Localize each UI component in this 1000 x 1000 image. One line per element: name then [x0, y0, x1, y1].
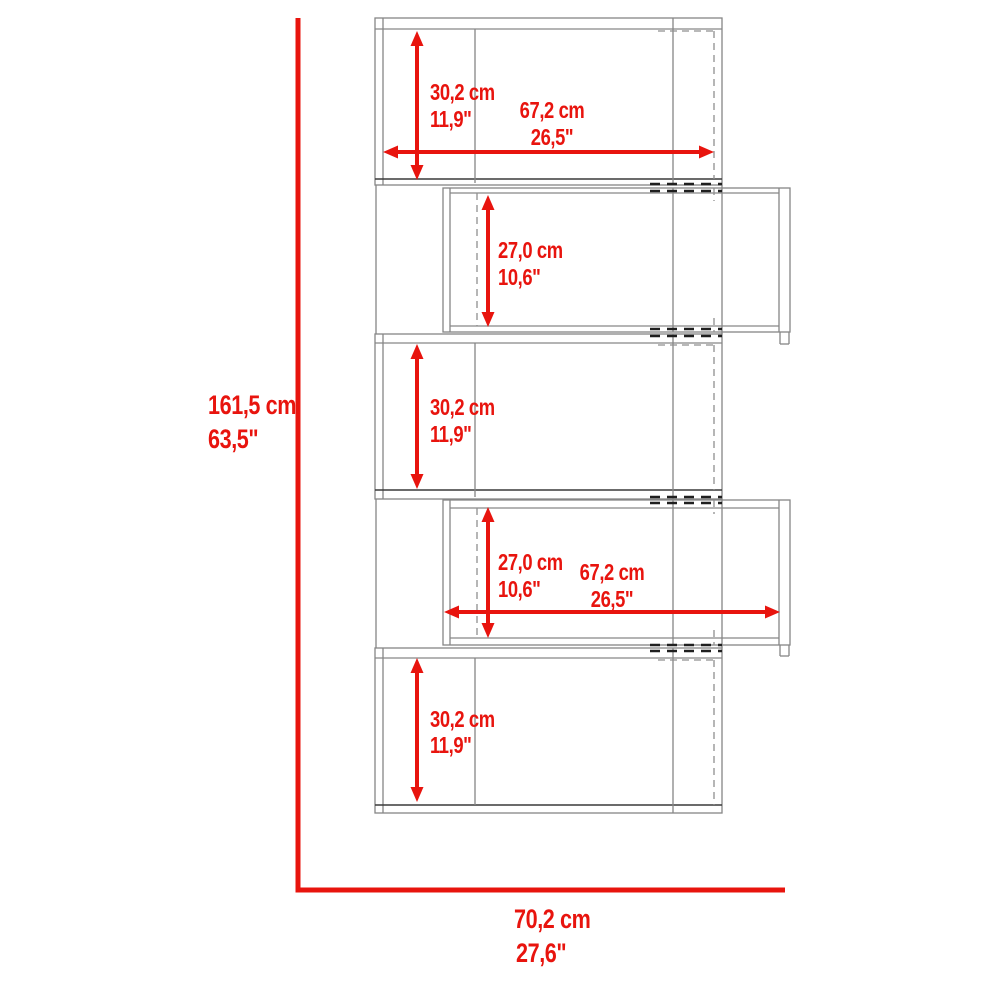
compartment-1-height-arrow [411, 31, 424, 180]
overall-width-in: 27,6" [516, 939, 566, 969]
compartment-4-height-arrow [482, 507, 495, 638]
compartment-2-height-label-inches: 10,6" [498, 265, 541, 290]
compartment-3-outline [375, 334, 722, 499]
compartment-4-width-in: 26,5" [591, 587, 634, 612]
shelf-boundary-hidden-edges [650, 184, 722, 651]
compartment-5-outline [375, 648, 722, 813]
arrow-head-left [444, 606, 459, 619]
compartment-3-height-in: 11,9" [430, 422, 471, 447]
compartment-3-height-cm: 30,2 cm [430, 395, 495, 420]
compartment-1-width-label: 67,2 cm [520, 98, 585, 123]
compartment-3-height-arrow [411, 344, 424, 489]
arrow-head-up [411, 658, 424, 673]
arrow-head-up [482, 195, 495, 210]
arrow-head-up [411, 344, 424, 359]
panel-outer-edge [375, 334, 722, 499]
compartment-1-width-in: 26,5" [531, 125, 574, 150]
compartment-1-height-label-inches: 11,9" [430, 107, 471, 132]
arrow-head-right [765, 606, 780, 619]
compartment-4-height-label-inches: 10,6" [498, 577, 541, 602]
compartment-2-height-in: 10,6" [498, 265, 541, 290]
panel-outer-edge [443, 188, 790, 332]
compartment-1-height-in: 11,9" [430, 107, 471, 132]
overall-height-cm: 161,5 cm [208, 391, 296, 421]
panel-outer-edge [375, 648, 722, 813]
compartment-4-height-label: 27,0 cm [498, 550, 563, 575]
furniture-dimension-drawing: 161,5 cm 63,5" 70,2 cm 27,6" 30,2 cm 11,… [0, 0, 1000, 1000]
arrow-head-down [482, 623, 495, 638]
overall-height-in: 63,5" [208, 425, 258, 455]
arrow-head-down [411, 474, 424, 489]
overall-width-label-inches: 27,6" [516, 939, 566, 969]
arrow-head-down [482, 312, 495, 327]
overall-height-label-inches: 63,5" [208, 425, 258, 455]
compartment-2-height-label: 27,0 cm [498, 238, 563, 263]
compartment-4-width-cm: 67,2 cm [580, 560, 645, 585]
compartment-1-width-label-inches: 26,5" [531, 125, 574, 150]
overall-width-cm: 70,2 cm [514, 905, 590, 935]
compartment-1-height-cm: 30,2 cm [430, 80, 495, 105]
compartment-5-height-label: 30,2 cm [430, 707, 495, 732]
compartment-3-height-label-inches: 11,9" [430, 422, 471, 447]
compartment-1-height-label: 30,2 cm [430, 80, 495, 105]
compartment-2-outline [376, 185, 790, 344]
dimension-diagram: 161,5 cm 63,5" 70,2 cm 27,6" 30,2 cm 11,… [0, 0, 1000, 1000]
overall-height-label: 161,5 cm [208, 391, 296, 421]
compartment-3-height-label: 30,2 cm [430, 395, 495, 420]
overall-width-label: 70,2 cm [514, 905, 590, 935]
arrow-head-left [383, 146, 398, 159]
arrow-head-right [699, 146, 714, 159]
compartment-4-height-in: 10,6" [498, 577, 541, 602]
compartment-2-height-arrow [482, 195, 495, 327]
arrow-head-up [482, 507, 495, 522]
compartment-5-height-label-inches: 11,9" [430, 733, 471, 758]
compartment-5-height-cm: 30,2 cm [430, 707, 495, 732]
compartment-4-width-label-inches: 26,5" [591, 587, 634, 612]
compartment-1-width-cm: 67,2 cm [520, 98, 585, 123]
compartment-4-height-cm: 27,0 cm [498, 550, 563, 575]
compartment-2-height-cm: 27,0 cm [498, 238, 563, 263]
arrow-head-down [411, 787, 424, 802]
arrow-head-up [411, 31, 424, 46]
compartment-5-height-arrow [411, 658, 424, 802]
compartment-5-height-in: 11,9" [430, 733, 471, 758]
compartment-4-width-label: 67,2 cm [580, 560, 645, 585]
arrow-head-down [411, 165, 424, 180]
